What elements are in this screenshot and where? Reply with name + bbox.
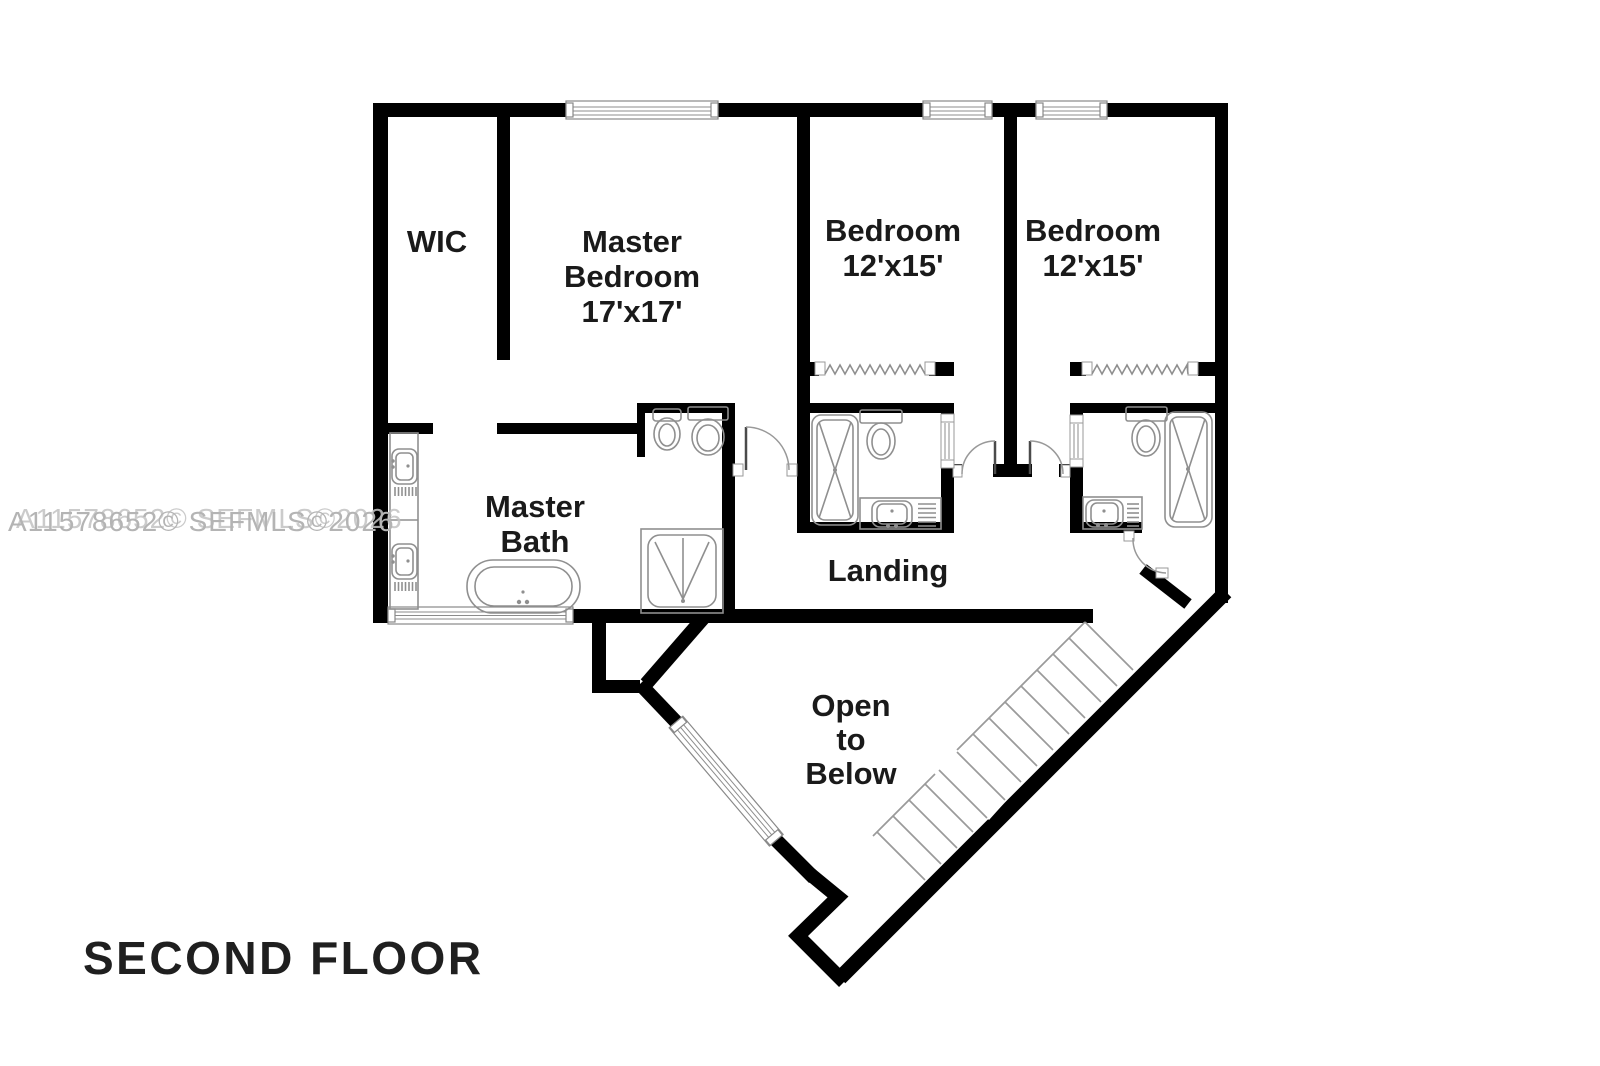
door-master-bath	[733, 427, 797, 476]
mls-watermark: A11578652© SEFMLS©2026	[8, 506, 395, 537]
tub-bath-right	[1165, 412, 1212, 527]
door-bedroom-right	[1030, 441, 1070, 477]
room-label-open-3: Below	[805, 756, 897, 791]
closet-door-right	[1082, 362, 1198, 375]
room-label-master-bedroom-3: 17'x17'	[582, 294, 683, 329]
room-label-wic: WIC	[407, 224, 467, 259]
room-label-bedroom-right-2: 12'x15'	[1043, 248, 1144, 283]
room-label-bedroom-left-2: 12'x15'	[843, 248, 944, 283]
room-label-open-2: to	[836, 722, 865, 757]
closet-door-left	[815, 362, 935, 375]
door-bedroom-left	[953, 441, 995, 477]
room-labels: WIC Master Bedroom 17'x17' Bedroom 12'x1…	[407, 213, 1161, 791]
room-label-landing: Landing	[828, 553, 949, 588]
room-label-open-1: Open	[811, 688, 890, 723]
window-bedroom-right	[1036, 101, 1107, 119]
shower-master	[641, 529, 723, 613]
toilet-bath-right	[1126, 407, 1167, 456]
room-label-master-bedroom-2: Bedroom	[564, 259, 700, 294]
floor-plan-svg: WIC Master Bedroom 17'x17' Bedroom 12'x1…	[0, 0, 1600, 1066]
toilet-bath-left	[860, 410, 902, 459]
pocket-door-bath-right	[1070, 415, 1083, 467]
pocket-door-bath-left	[941, 414, 954, 468]
room-label-master-bath-1: Master	[485, 489, 585, 524]
window-bedroom-left	[923, 101, 992, 119]
window-diagonal	[669, 716, 783, 846]
tub-bath-left	[812, 415, 858, 525]
bidet-master	[653, 409, 681, 450]
page-title: SECOND FLOOR	[83, 932, 484, 984]
room-label-bedroom-right-1: Bedroom	[1025, 213, 1161, 248]
stair-break-band	[937, 750, 1007, 820]
bathtub-master	[467, 560, 580, 613]
room-label-master-bedroom-1: Master	[582, 224, 682, 259]
staircase	[873, 622, 1133, 880]
room-label-master-bath-2: Bath	[501, 524, 570, 559]
window-master-bedroom	[566, 101, 718, 119]
floorplan-page: WIC Master Bedroom 17'x17' Bedroom 12'x1…	[0, 0, 1600, 1066]
room-label-bedroom-left-1: Bedroom	[825, 213, 961, 248]
